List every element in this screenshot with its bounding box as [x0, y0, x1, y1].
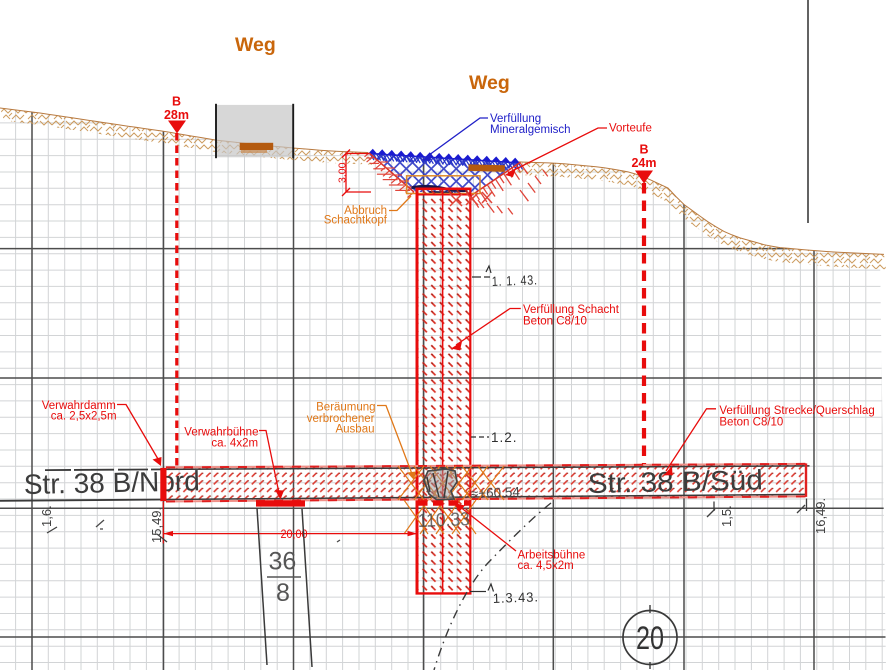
svg-text:ca. 4x2m: ca. 4x2m [211, 438, 258, 450]
svg-text:Ausbau: Ausbau [335, 424, 374, 436]
svg-text:ca. 2,5x2,5m: ca. 2,5x2,5m [51, 411, 117, 423]
svg-text:Vorteufe: Vorteufe [609, 123, 652, 135]
svg-text:36: 36 [269, 548, 297, 576]
svg-text:ca. 4,5x2m: ca. 4,5x2m [518, 560, 574, 572]
svg-text:1,6.: 1,6. [39, 505, 54, 527]
svg-text:24m: 24m [631, 156, 656, 170]
svg-text:110.33: 110.33 [417, 509, 470, 532]
svg-text:Beräumung: Beräumung [316, 402, 375, 414]
svg-text:16,49.: 16,49. [813, 498, 828, 534]
svg-text:Weg: Weg [469, 72, 510, 94]
svg-text:Beton C8/10: Beton C8/10 [719, 417, 783, 429]
svg-text:Str. 38 B/Süd: Str. 38 B/Süd [587, 464, 763, 499]
svg-text:B: B [172, 95, 181, 109]
svg-text:Schachtkopf: Schachtkopf [324, 215, 388, 227]
svg-text:Verfüllung Strecke/Querschlag: Verfüllung Strecke/Querschlag [719, 405, 874, 417]
svg-text:1.2.: 1.2. [491, 430, 518, 445]
svg-text:Str. 38 B/Nord: Str. 38 B/Nord [23, 465, 200, 500]
svg-text:20: 20 [636, 620, 664, 656]
svg-text:1,5.: 1,5. [719, 505, 734, 527]
svg-text:28m: 28m [164, 108, 189, 122]
svg-text:1.3.43.: 1.3.43. [493, 589, 539, 606]
svg-text:8: 8 [276, 579, 290, 607]
svg-text:Mineralgemisch: Mineralgemisch [490, 124, 571, 136]
svg-text:≈+60.54: ≈+60.54 [471, 484, 521, 501]
svg-text:Verfüllung Schacht: Verfüllung Schacht [523, 304, 620, 316]
svg-text:Beton C8/10: Beton C8/10 [523, 316, 587, 328]
svg-text:1. 1. 43.: 1. 1. 43. [492, 272, 538, 289]
svg-text:Weg: Weg [235, 34, 276, 56]
svg-text:3.00: 3.00 [337, 162, 349, 183]
svg-text:B: B [639, 143, 648, 157]
